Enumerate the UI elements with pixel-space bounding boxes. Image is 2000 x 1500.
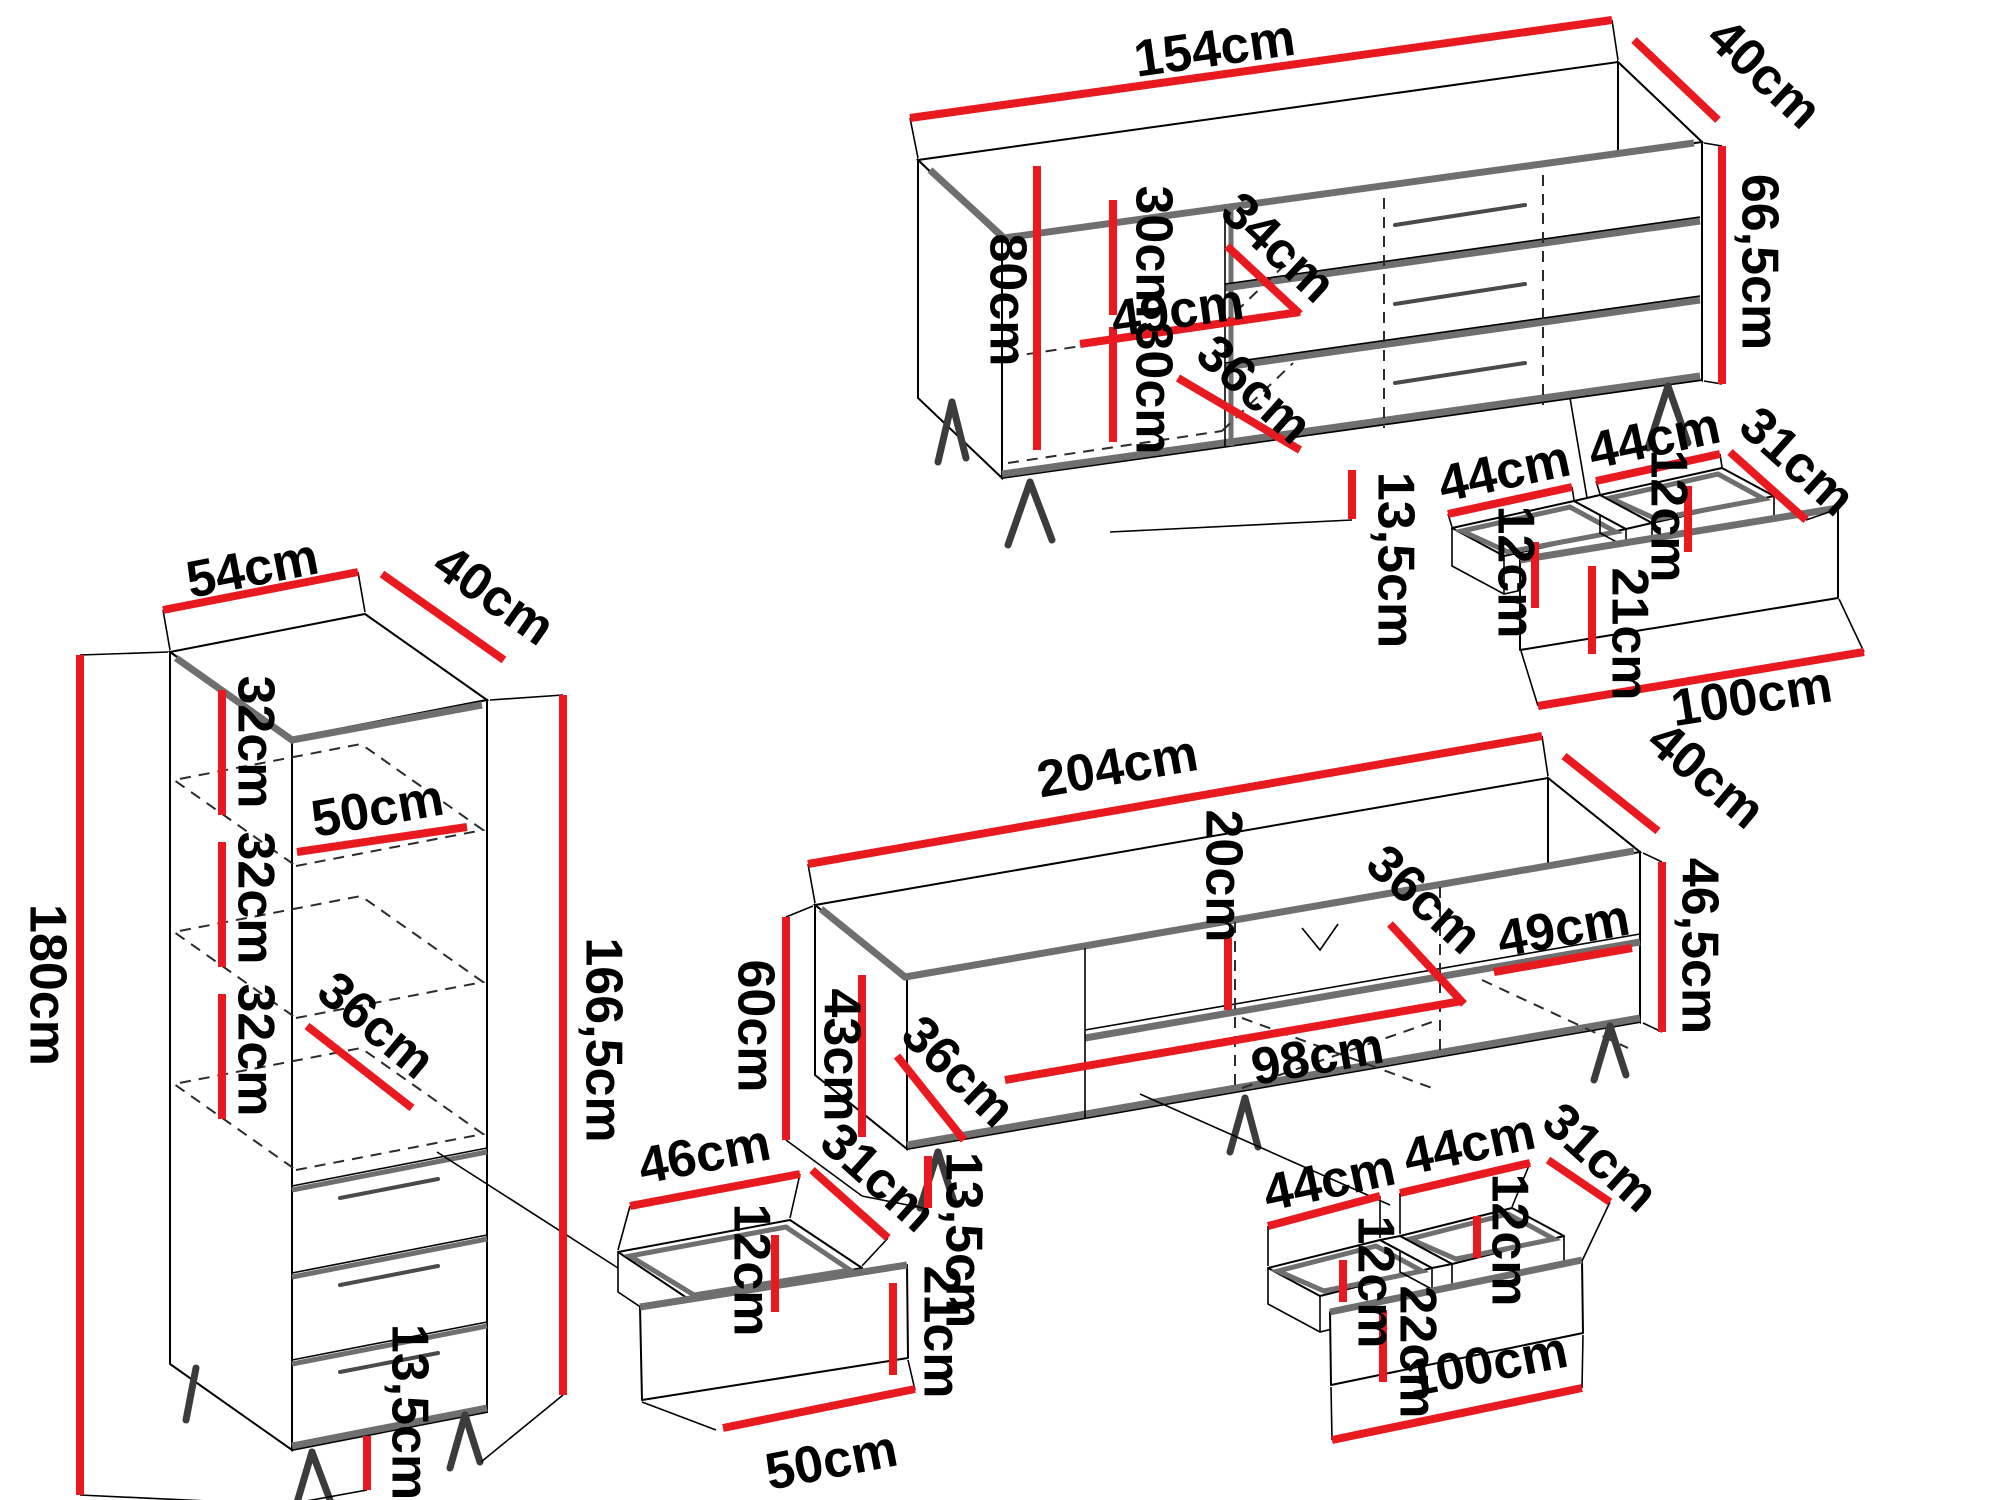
tv-drawer-set-drawing: 44cm 44cm 31cm 12cm 12cm 22cm 100cm <box>1258 1092 1669 1440</box>
dim-sideboard-height-total: 80cm <box>978 234 1036 367</box>
diagram-canvas: 154cm 40cm 80cm 66,5cm 30cm 30cm 34cm 49… <box>0 0 2000 1500</box>
dim-ds1-left-inner-height: 12cm <box>1486 506 1544 639</box>
dim-cabinet-gap2: 32cm <box>226 832 284 965</box>
furniture-dimension-diagram: 154cm 40cm 80cm 66,5cm 30cm 30cm 34cm 49… <box>0 0 2000 1500</box>
dim-tv-shelf-gap: 20cm <box>1194 810 1252 943</box>
dim-ds2-right-inner-height: 12cm <box>1480 1174 1538 1307</box>
dim-sd-inner-height: 12cm <box>722 1204 780 1337</box>
dim-ds1-front-height: 21cm <box>1600 568 1658 701</box>
dim-sd-front-width: 50cm <box>761 1420 903 1500</box>
dim-cabinet-leg-height: 13,5cm <box>380 1324 438 1500</box>
dim-sideboard-width: 154cm <box>1130 9 1298 89</box>
dim-cabinet-gap3: 32cm <box>226 984 284 1117</box>
dim-cabinet-height-body: 166,5cm <box>574 937 632 1142</box>
dim-ds2-left-width: 44cm <box>1258 1139 1400 1223</box>
dim-tv-leg-height: 13,5cm <box>934 1152 992 1328</box>
dim-ds1-left-width: 44cm <box>1433 430 1575 514</box>
dim-ds1-right-inner-height: 12cm <box>1639 450 1697 583</box>
dim-sideboard-leg-height: 13,5cm <box>1366 472 1424 648</box>
tall-cabinet-drawing: 54cm 40cm 180cm 166,5cm 32cm 32cm 32cm 5… <box>18 528 632 1500</box>
dim-ds2-depth: 31cm <box>1531 1092 1669 1224</box>
dim-sideboard-height-body: 66,5cm <box>1730 174 1788 350</box>
dim-tv-height-total: 60cm <box>726 960 784 1093</box>
dim-cabinet-height-total: 180cm <box>18 904 76 1066</box>
dim-tv-height-body: 46,5cm <box>1670 858 1728 1034</box>
dim-cabinet-depth: 40cm <box>423 533 565 657</box>
sideboard-drawer-set-drawing: 44cm 44cm 31cm 12cm 12cm 21cm 100cm <box>1433 396 1866 739</box>
dim-cabinet-width: 54cm <box>182 528 324 610</box>
dim-tv-inner-height: 43cm <box>812 989 870 1122</box>
cabinet-drawer-drawing: 46cm 31cm 12cm 21cm 50cm <box>618 1112 970 1500</box>
dim-cabinet-gap1: 32cm <box>226 676 284 809</box>
